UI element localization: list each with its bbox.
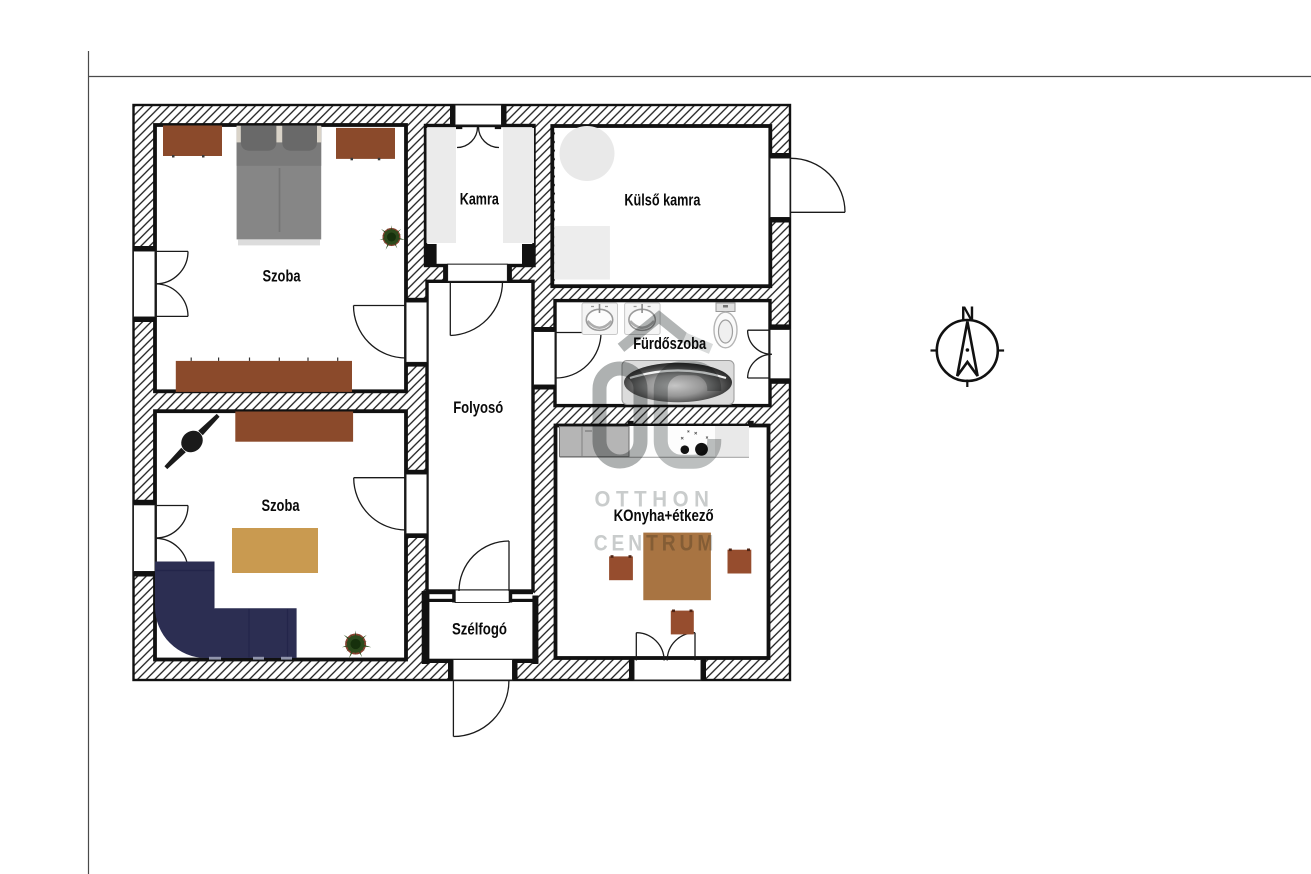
svg-text:Külső kamra: Külső kamra [624,191,700,210]
svg-text:Folyosó: Folyosó [453,398,503,417]
svg-text:CENTRUM: CENTRUM [594,531,718,556]
svg-text:Szoba: Szoba [263,267,301,286]
svg-text:Kamra: Kamra [460,190,499,209]
svg-text:N: N [961,304,975,325]
svg-text:Szoba: Szoba [262,496,300,515]
svg-text:Szélfogó: Szélfogó [452,620,507,639]
svg-text:OTTHON: OTTHON [595,486,715,511]
